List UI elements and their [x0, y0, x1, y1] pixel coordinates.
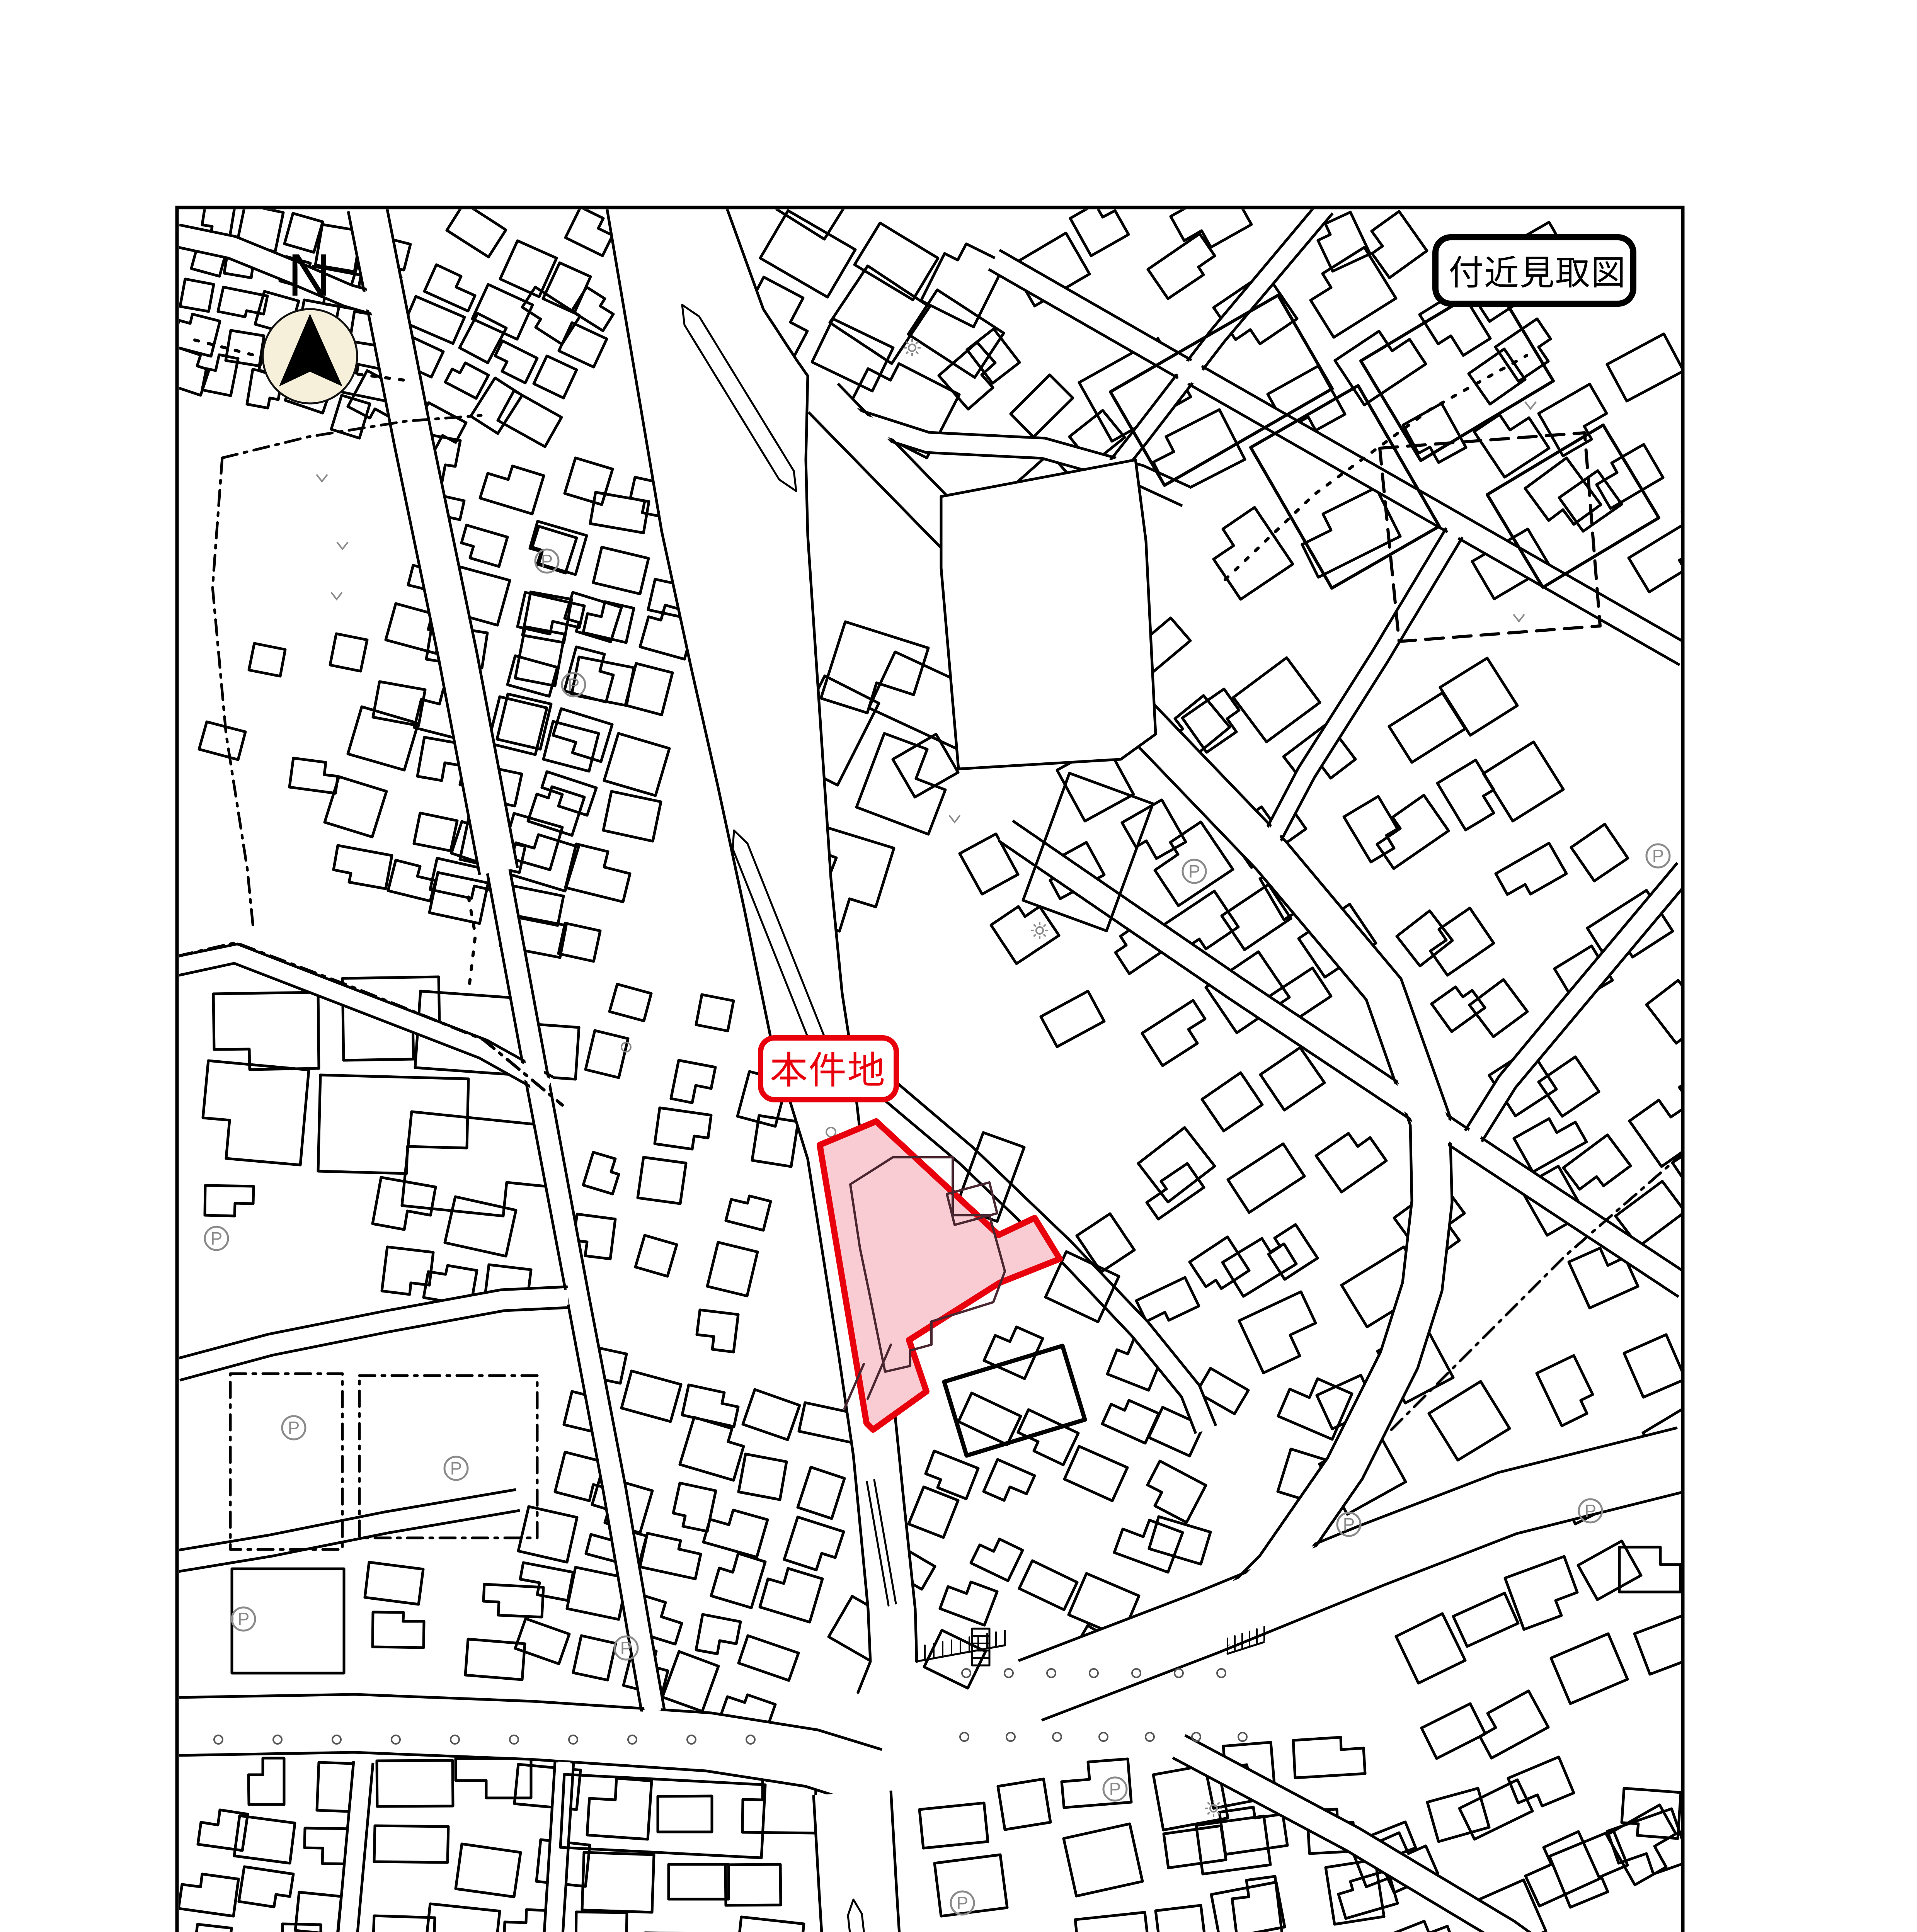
svg-text:P: P: [1652, 846, 1664, 866]
svg-text:P: P: [1585, 1501, 1597, 1521]
svg-text:P: P: [1343, 1514, 1355, 1534]
svg-text:P: P: [211, 1228, 223, 1248]
svg-text:P: P: [450, 1458, 462, 1478]
svg-text:N: N: [288, 241, 331, 308]
svg-text:P: P: [238, 1609, 250, 1629]
svg-text:P: P: [1109, 1779, 1121, 1799]
svg-text:P: P: [288, 1418, 300, 1438]
svg-text:P: P: [957, 1893, 969, 1913]
svg-text:P: P: [1188, 861, 1200, 881]
svg-text:P: P: [541, 551, 553, 571]
svg-text:P: P: [568, 675, 580, 695]
svg-text:P: P: [620, 1638, 632, 1658]
